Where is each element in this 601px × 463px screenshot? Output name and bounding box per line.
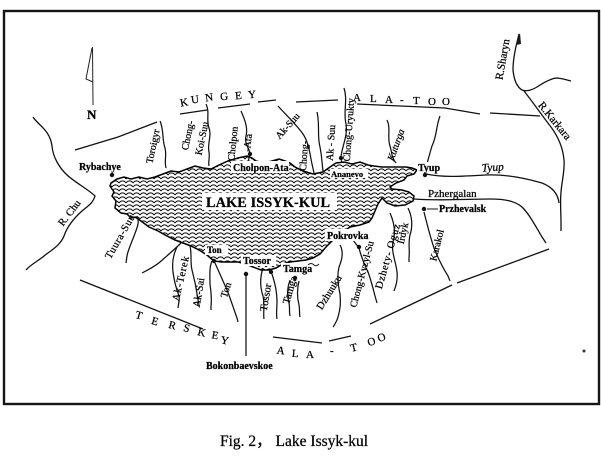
svg-text:Rybachye: Rybachye (79, 162, 121, 173)
svg-text:Pzhergalan: Pzhergalan (428, 188, 477, 200)
svg-text:Y: Y (248, 89, 257, 102)
svg-text:Chong-: Chong- (298, 140, 311, 171)
svg-text:T: T (413, 95, 420, 107)
svg-text:-Ata: -Ata (242, 133, 255, 152)
svg-text:-: - (330, 345, 334, 357)
svg-text:N: N (87, 107, 97, 122)
svg-text:Tossor: Tossor (243, 256, 272, 267)
svg-text:Bokonbaevskoe: Bokonbaevskoe (206, 361, 273, 372)
svg-text:L: L (370, 93, 377, 105)
svg-text:Tyup: Tyup (418, 163, 440, 174)
svg-text:Ananevo: Ananevo (331, 169, 363, 179)
svg-text:G: G (219, 91, 228, 104)
svg-text:Ton: Ton (207, 245, 222, 255)
svg-text:A: A (306, 349, 314, 361)
svg-text:Przhevalsk: Przhevalsk (439, 204, 487, 215)
svg-text:Fig. 2， Lake Issyk-kul: Fig. 2， Lake Issyk-kul (220, 433, 368, 450)
svg-text:L: L (291, 348, 299, 360)
svg-text:LAKE ISSYK-KUL: LAKE ISSYK-KUL (206, 195, 330, 211)
svg-text:E: E (235, 90, 243, 103)
svg-text:Cholpon-Ata: Cholpon-Ata (233, 163, 289, 174)
svg-text:A: A (385, 94, 393, 106)
svg-text:O: O (442, 96, 450, 108)
svg-text:Tamga: Tamga (283, 264, 312, 275)
svg-text:Tyup: Tyup (481, 161, 504, 175)
svg-text:O: O (428, 96, 436, 108)
svg-text:Pokrovka: Pokrovka (327, 231, 369, 242)
svg-text:-: - (400, 94, 404, 106)
